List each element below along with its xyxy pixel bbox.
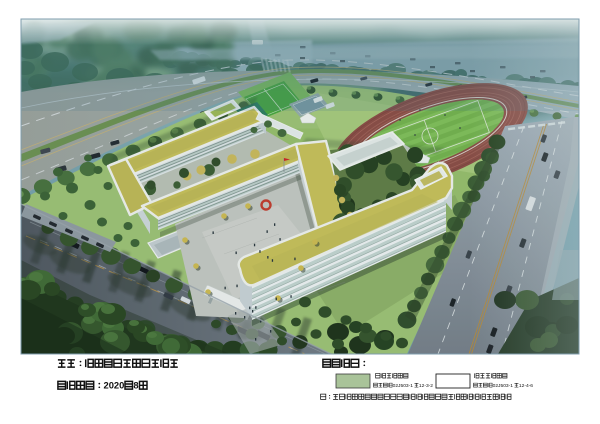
svg-text:12-3-2: 12-3-2	[419, 383, 433, 389]
svg-text:2020: 2020	[104, 380, 125, 391]
svg-text:8: 8	[133, 380, 138, 391]
svg-text:12-4-6: 12-4-6	[519, 383, 533, 389]
svg-text:02J503-1: 02J503-1	[493, 383, 514, 389]
svg-text:02J503-1: 02J503-1	[393, 383, 414, 389]
